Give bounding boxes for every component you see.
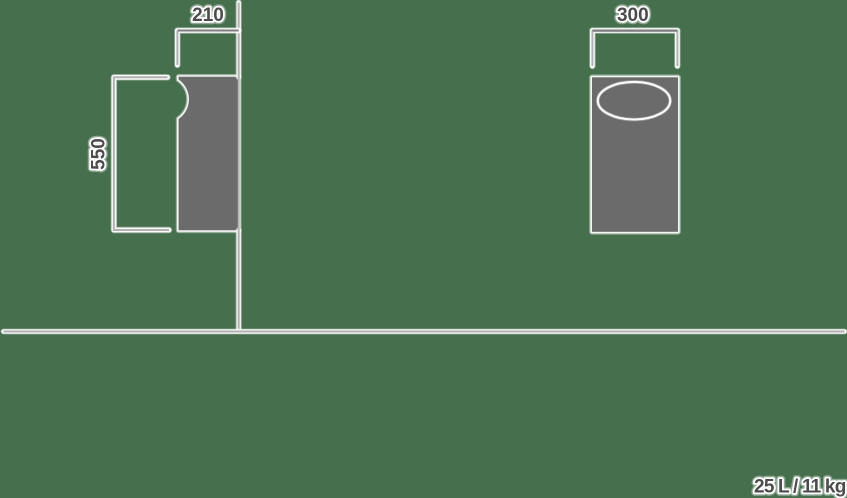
svg-text:25 L / 11 kg: 25 L / 11 kg bbox=[754, 476, 846, 497]
svg-text:550: 550 bbox=[88, 138, 109, 170]
svg-text:210: 210 bbox=[192, 5, 224, 26]
svg-text:300: 300 bbox=[617, 5, 649, 26]
